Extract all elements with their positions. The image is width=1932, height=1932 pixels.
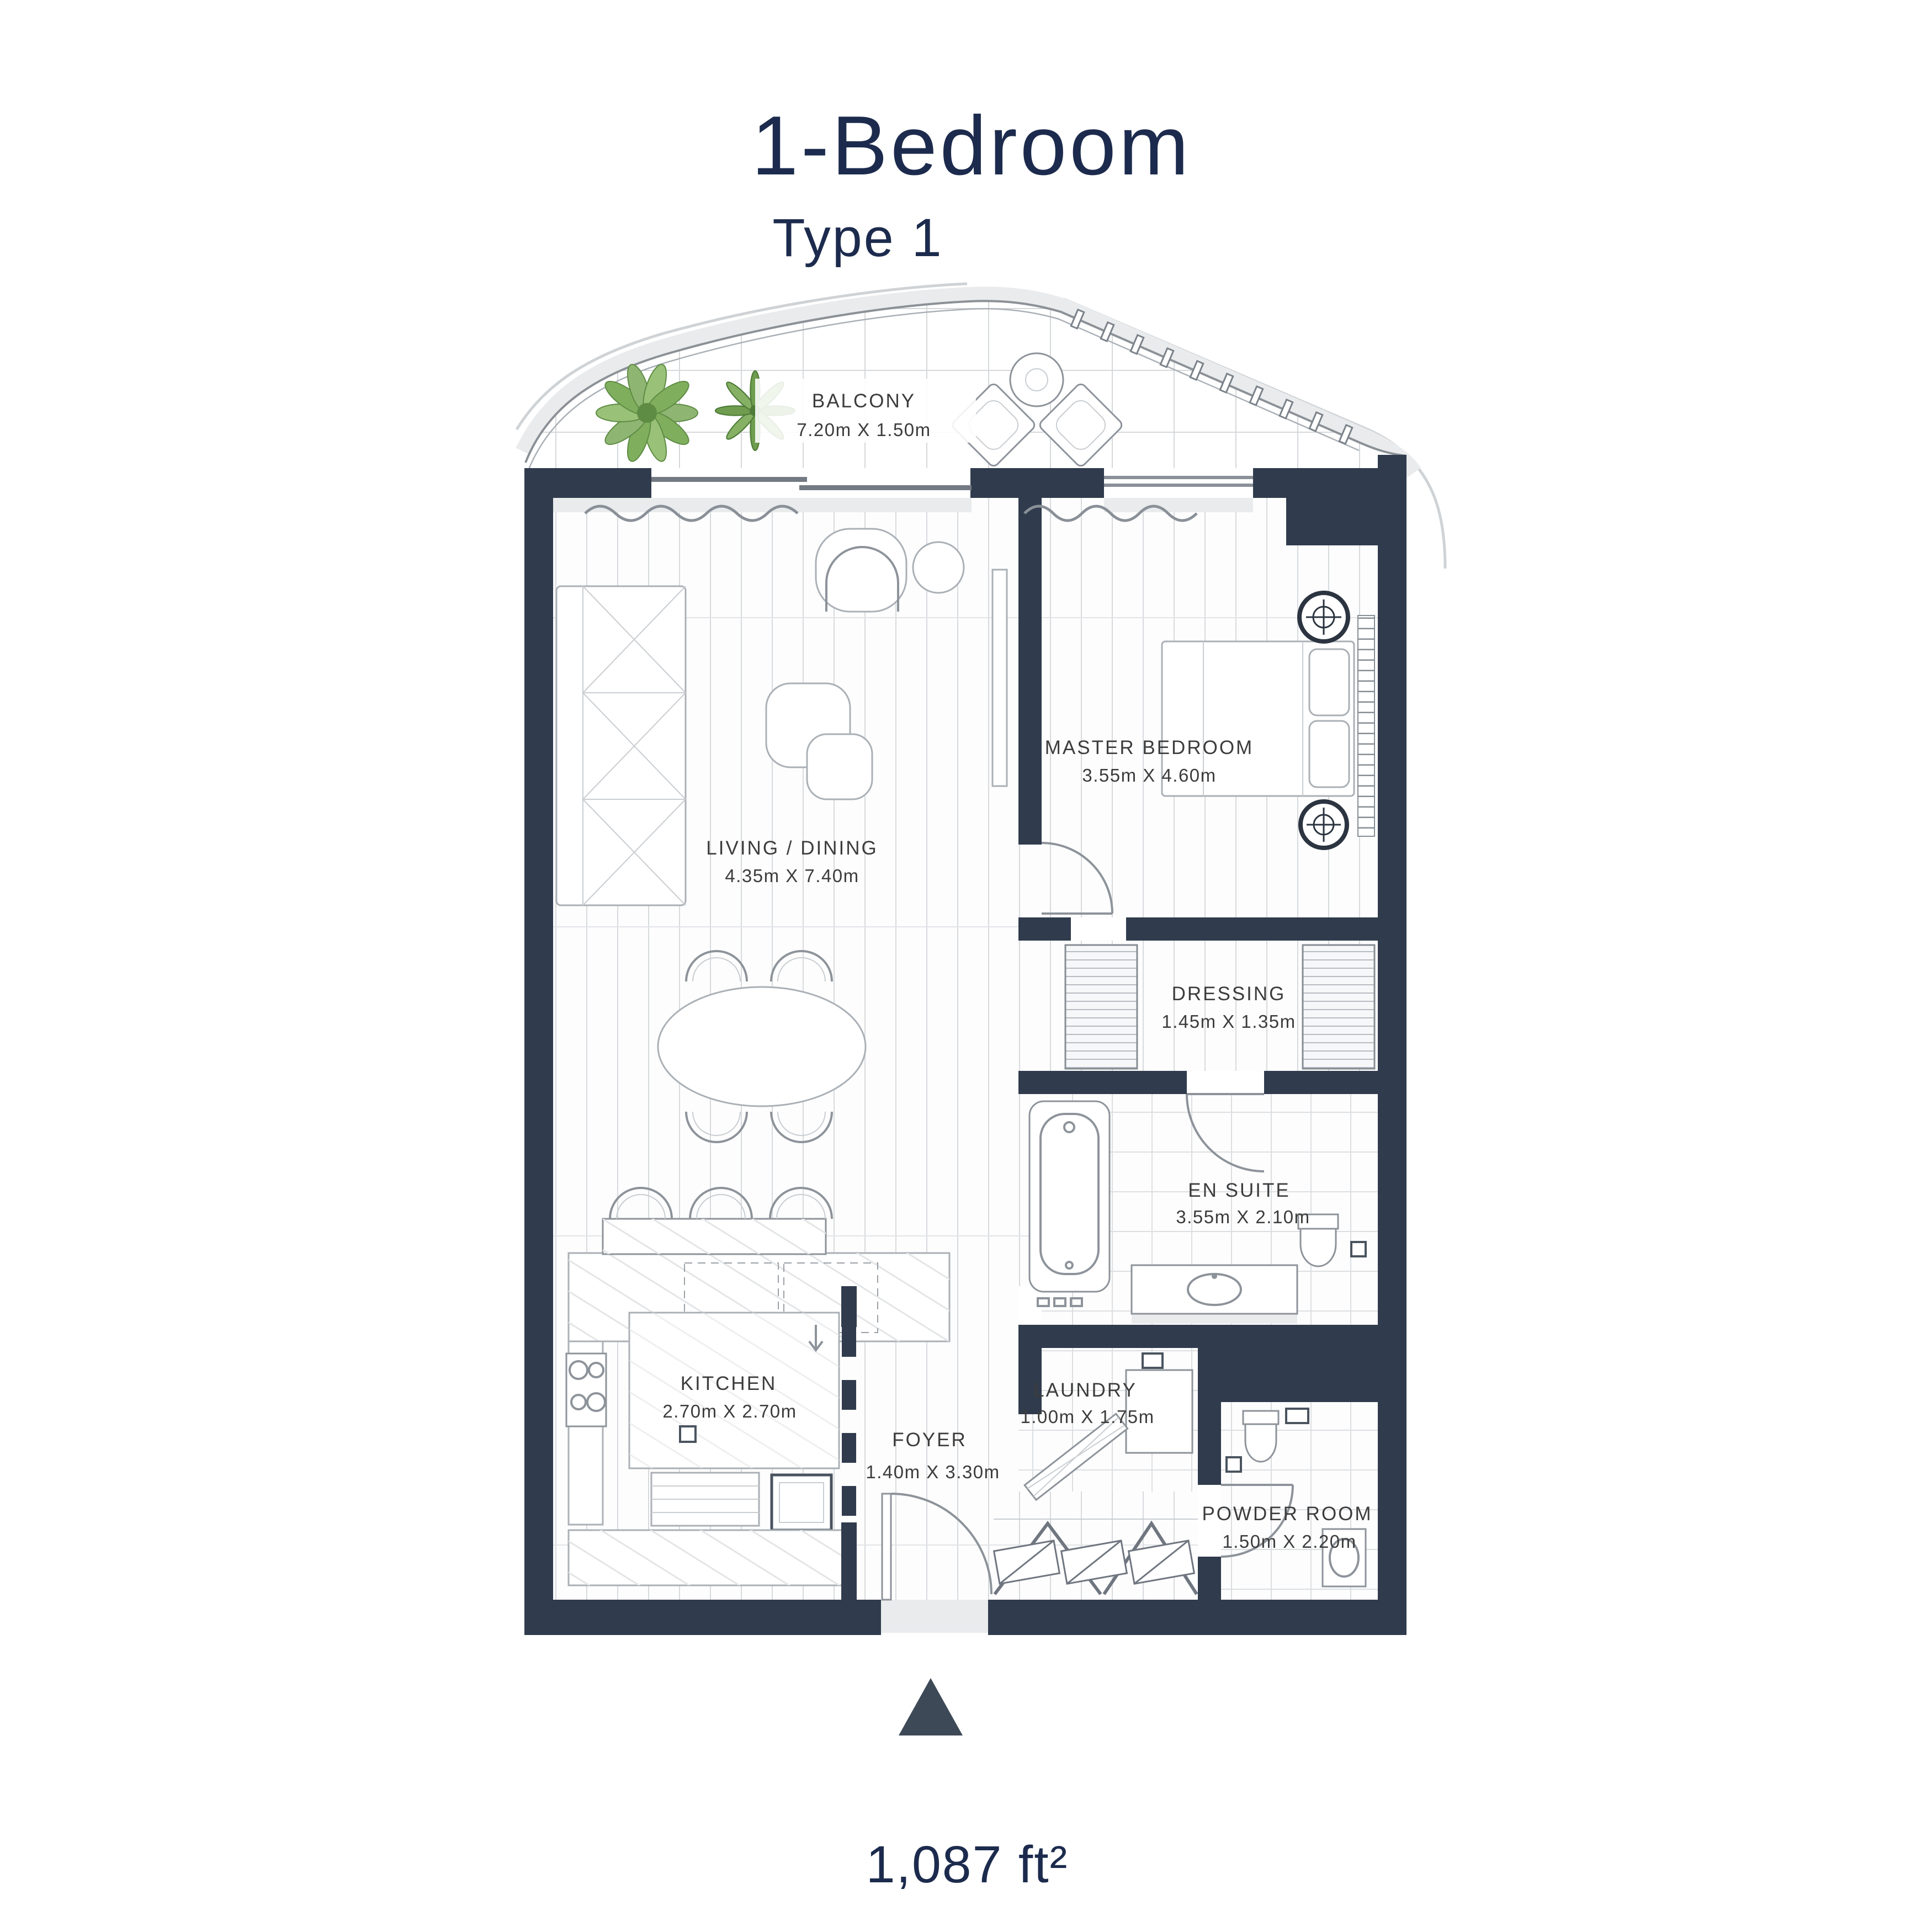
room-label-balcony: BALCONY xyxy=(812,390,916,412)
room-dims-powder: 1.50m X 2.20m xyxy=(1222,1531,1356,1552)
room-label-ensuite: EN SUITE xyxy=(1188,1180,1290,1201)
wall-switch xyxy=(680,1426,696,1442)
wall-ensuite-bottom xyxy=(1018,1325,1378,1348)
wall-column xyxy=(1286,498,1378,545)
wall-ensuite-a xyxy=(1018,1071,1187,1094)
sliding-door-panel xyxy=(651,477,807,482)
wall-switch xyxy=(1143,1354,1163,1368)
room-dims-living: 4.35m X 7.40m xyxy=(725,866,859,886)
wall-dressing-a xyxy=(1018,917,1071,941)
wall-ensuite-b xyxy=(1264,1071,1378,1094)
ceiling-light-icon xyxy=(1299,593,1348,641)
wall-accessory xyxy=(1286,1409,1308,1423)
wall-kitchen-stub-bottom xyxy=(841,1522,857,1600)
wall-divider xyxy=(1018,498,1042,845)
wall-shadow xyxy=(1104,498,1253,512)
wall-top-c xyxy=(1253,468,1378,498)
room-label-powder: POWDER ROOM xyxy=(1202,1503,1372,1525)
room-dims-dressing: 1.45m X 1.35m xyxy=(1161,1011,1296,1032)
room-dims-kitchen: 2.70m X 2.70m xyxy=(662,1401,797,1421)
wall-top-a xyxy=(553,468,651,498)
ceiling-light-icon xyxy=(1301,802,1347,848)
wall-dressing-b xyxy=(1126,917,1378,941)
wall-bottom-right xyxy=(988,1600,1378,1635)
wardrobe-strip xyxy=(1358,615,1374,836)
room-dims-master: 3.55m X 4.60m xyxy=(1082,765,1216,785)
wall-right xyxy=(1378,455,1406,1635)
toilet xyxy=(1243,1411,1278,1462)
room-label-kitchen: KITCHEN xyxy=(681,1373,777,1394)
wall-powder-left-b xyxy=(1198,1557,1221,1635)
sliding-door-panel xyxy=(799,485,972,490)
wall-switch xyxy=(1351,1242,1366,1256)
wall-powder-left-a xyxy=(1198,1402,1221,1485)
room-label-foyer: FOYER xyxy=(892,1429,967,1451)
threshold xyxy=(651,498,972,511)
wall-powder-mass xyxy=(1198,1348,1378,1402)
wall-top-b xyxy=(970,468,1104,498)
drawer-unit xyxy=(651,1473,759,1526)
window xyxy=(1104,476,1253,479)
vanity-sink xyxy=(1132,1265,1297,1324)
room-label-dressing: DRESSING xyxy=(1172,983,1286,1005)
side-table xyxy=(913,542,964,593)
entry-threshold xyxy=(881,1600,988,1633)
room-dims-laundry: 1.00m X 1.75m xyxy=(1020,1406,1154,1427)
tv-console xyxy=(992,570,1007,786)
wall-switch xyxy=(1227,1457,1241,1472)
stove xyxy=(566,1354,606,1426)
bathtub xyxy=(1029,1101,1110,1306)
wall-kitchen-stub-top xyxy=(841,1286,857,1327)
counter-bottom-grain xyxy=(569,1530,856,1585)
area-text: 1,087 ft² xyxy=(866,1835,1069,1894)
dining-table xyxy=(658,987,866,1106)
sofa xyxy=(556,586,686,905)
wall-bottom-left xyxy=(553,1600,881,1635)
floorplan-canvas: 1-Bedroom Type 1 xyxy=(0,0,1932,1932)
wall-left xyxy=(524,468,553,1635)
room-label-laundry: LAUNDRY xyxy=(1033,1379,1137,1401)
page-subtitle: Type 1 xyxy=(772,208,943,268)
page-title: 1-Bedroom xyxy=(752,99,1192,193)
room-label-master: MASTER BEDROOM xyxy=(1045,737,1254,758)
armchair xyxy=(816,529,906,612)
window xyxy=(1104,484,1253,487)
room-dims-balcony: 7.20m X 1.50m xyxy=(797,420,931,440)
oven xyxy=(772,1475,831,1530)
room-dims-ensuite: 3.55m X 2.10m xyxy=(1176,1207,1310,1227)
room-label-living: LIVING / DINING xyxy=(706,837,878,859)
room-dims-foyer: 1.40m X 3.30m xyxy=(866,1462,1000,1482)
